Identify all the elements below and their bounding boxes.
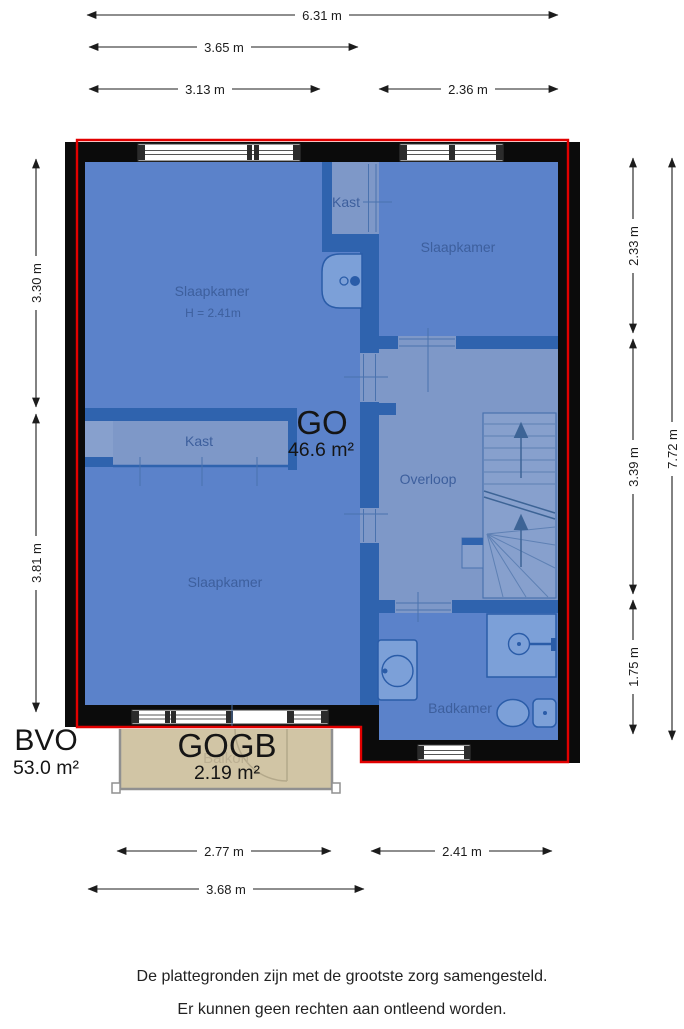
svg-text:3.39 m: 3.39 m	[626, 447, 641, 487]
stairs-landing-edge	[462, 538, 483, 545]
svg-text:7.72 m: 7.72 m	[665, 429, 680, 469]
svg-text:2.36 m: 2.36 m	[448, 82, 488, 97]
label-slaapkamer-left: Slaapkamer	[175, 283, 250, 299]
badkamer-left-wall	[360, 613, 379, 705]
go-value: 46.6 m²	[288, 439, 355, 461]
dim-width-upper-left: 3.13 m	[89, 82, 320, 97]
svg-text:2.41 m: 2.41 m	[442, 844, 482, 859]
center-wall-seg1	[360, 252, 379, 353]
go-label: GO	[296, 404, 347, 441]
window-top-left	[138, 144, 300, 161]
center-wall-seg2	[360, 402, 379, 508]
label-overloop: Overloop	[400, 471, 457, 487]
svg-text:3.65 m: 3.65 m	[204, 40, 244, 55]
balcony-rail-cap-left	[112, 783, 120, 793]
footer: De plattegronden zijn met de grootste zo…	[137, 968, 548, 1018]
dim-width-bathroom: 2.41 m	[371, 844, 552, 859]
dim-width-total: 6.31 m	[87, 8, 558, 23]
dim-width-bottom: 3.68 m	[88, 882, 364, 897]
label-slaapkamer-bottom: Slaapkamer	[188, 574, 263, 590]
dim-height-right-middle: 3.39 m	[626, 339, 641, 594]
dim-height-left-top: 3.30 m	[29, 159, 44, 407]
shower-icon	[487, 614, 556, 677]
label-badkamer: Badkamer	[428, 700, 492, 716]
svg-text:1.75 m: 1.75 m	[626, 647, 641, 687]
svg-text:6.31 m: 6.31 m	[302, 8, 342, 23]
niche-bottom-stub	[85, 457, 113, 467]
dim-width-upper-right: 2.36 m	[379, 82, 558, 97]
svg-text:3.30 m: 3.30 m	[29, 263, 44, 303]
svg-text:2.33 m: 2.33 m	[626, 226, 641, 266]
kast-top-door	[366, 162, 379, 234]
label-slaapkamer-right: Slaapkamer	[421, 239, 496, 255]
dim-height-right-bottom: 1.75 m	[626, 600, 641, 734]
toilet-sink-icon	[322, 254, 362, 308]
floorplan-page: Slaapkamer H = 2.41m Slaapkamer Kast Kas…	[0, 0, 684, 1024]
kast-top-left-wall	[322, 162, 332, 240]
floorplan-svg: Slaapkamer H = 2.41m Slaapkamer Kast Kas…	[0, 0, 684, 1024]
gogb-value: 2.19 m²	[194, 762, 261, 784]
washing-machine-icon	[378, 640, 417, 700]
dim-width-balcony: 2.77 m	[117, 844, 331, 859]
gogb-label: GOGB	[177, 727, 276, 764]
stair-top-wall-stub	[379, 403, 396, 415]
balcony-rail-cap-right	[332, 783, 340, 793]
window-badkamer	[418, 745, 470, 760]
label-kast-top: Kast	[332, 194, 360, 210]
bvo-label: BVO	[14, 724, 77, 757]
svg-text:3.68 m: 3.68 m	[206, 882, 246, 897]
svg-text:2.77 m: 2.77 m	[204, 844, 244, 859]
kast-top-bottom-wall	[322, 234, 379, 252]
overloop-bottom-wall-a	[360, 600, 395, 613]
window-top-right	[400, 144, 503, 161]
label-kast-long: Kast	[185, 433, 213, 449]
svg-text:3.13 m: 3.13 m	[185, 82, 225, 97]
wall-niche	[85, 421, 113, 457]
dim-height-right-top: 2.33 m	[626, 158, 641, 333]
kast-long-top-wall	[85, 408, 297, 421]
footer-disclaimer-line2: Er kunnen geen rechten aan ontleend word…	[177, 1001, 506, 1018]
slaapkamer-right-bottom-wall-b	[456, 336, 558, 349]
dim-width-upper: 3.65 m	[89, 40, 358, 55]
svg-text:3.81 m: 3.81 m	[29, 543, 44, 583]
footer-disclaimer-line1: De plattegronden zijn met de grootste zo…	[137, 968, 548, 985]
dim-height-right-total: 7.72 m	[665, 158, 680, 740]
slaapkamer-right-bottom-wall-a	[379, 336, 398, 349]
stairs-outline	[483, 413, 556, 598]
bvo-value: 53.0 m²	[13, 757, 80, 779]
wall-left	[65, 142, 85, 725]
dim-height-left-bottom: 3.81 m	[29, 414, 44, 712]
label-slaapkamer-left-height: H = 2.41m	[185, 306, 241, 320]
overloop-bottom-wall-b	[452, 600, 558, 613]
